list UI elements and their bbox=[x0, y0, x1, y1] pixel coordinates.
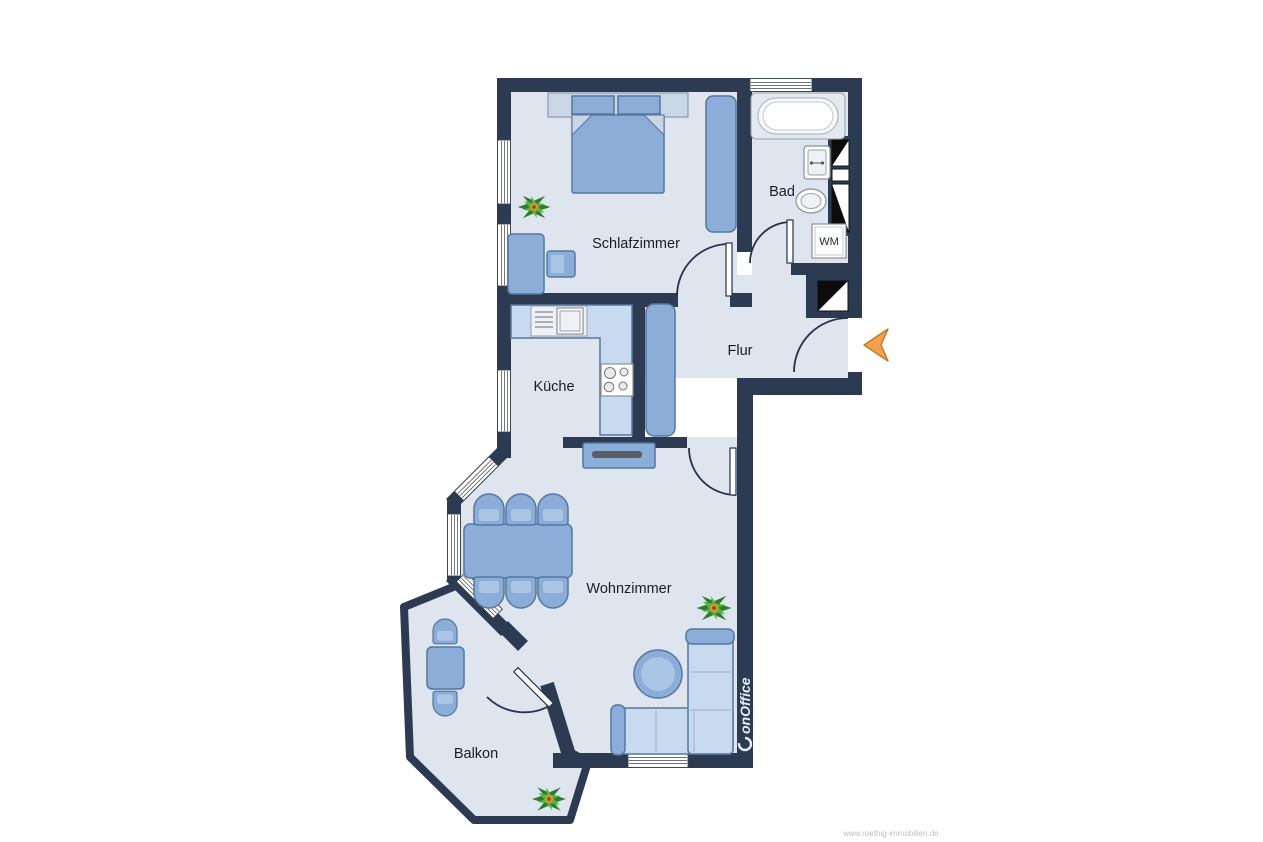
dining-window-vertical bbox=[448, 514, 461, 576]
sink bbox=[804, 146, 830, 179]
toilet bbox=[796, 189, 826, 213]
kitchen-window bbox=[498, 370, 511, 432]
floor-plan-canvas: WM bbox=[0, 0, 1263, 842]
bath-window bbox=[750, 79, 812, 92]
floor-plan-svg: WM bbox=[0, 0, 1263, 842]
balcony-chair bbox=[433, 691, 457, 716]
washing-machine-label: WM bbox=[819, 236, 839, 248]
room-label-kueche: Küche bbox=[533, 379, 574, 395]
dining-chair bbox=[538, 494, 568, 525]
bathtub-basin bbox=[763, 102, 833, 130]
kitchen-sink bbox=[531, 306, 587, 336]
watermark-subtitle: SOFTWARE bbox=[752, 706, 757, 733]
dining-chair bbox=[474, 494, 504, 525]
bathdoor-floor bbox=[752, 260, 791, 278]
room-label-balkon: Balkon bbox=[454, 746, 498, 762]
desk bbox=[508, 234, 544, 294]
room-label-wohnzimmer: Wohnzimmer bbox=[586, 581, 671, 597]
wardrobe bbox=[706, 96, 736, 232]
balcony-table bbox=[427, 647, 464, 689]
sideboard bbox=[583, 443, 655, 468]
hall-wardrobe bbox=[646, 304, 675, 436]
pillow bbox=[572, 96, 614, 114]
coffee-table bbox=[634, 650, 682, 698]
pillow bbox=[618, 96, 660, 114]
sofa-armrest bbox=[686, 629, 734, 644]
dining-chair bbox=[506, 577, 536, 608]
footer-url: www.roethig-immobilien.de bbox=[842, 829, 939, 838]
sofa-armrest bbox=[611, 705, 625, 755]
living-window bbox=[628, 754, 688, 768]
stove bbox=[601, 364, 633, 396]
entrance-arrow-icon bbox=[864, 329, 888, 361]
bed bbox=[572, 115, 664, 193]
dining-table bbox=[464, 524, 572, 578]
room-label-bad: Bad bbox=[769, 184, 795, 200]
washing-machine: WM bbox=[812, 224, 846, 258]
balcony-chair bbox=[433, 619, 457, 644]
dining-chair bbox=[506, 494, 536, 525]
room-label-schlafzimmer: Schlafzimmer bbox=[592, 236, 680, 252]
bedroom-window-1 bbox=[498, 140, 511, 204]
dining-chair bbox=[474, 577, 504, 608]
room-label-flur: Flur bbox=[728, 343, 753, 359]
dining-chair bbox=[538, 577, 568, 608]
